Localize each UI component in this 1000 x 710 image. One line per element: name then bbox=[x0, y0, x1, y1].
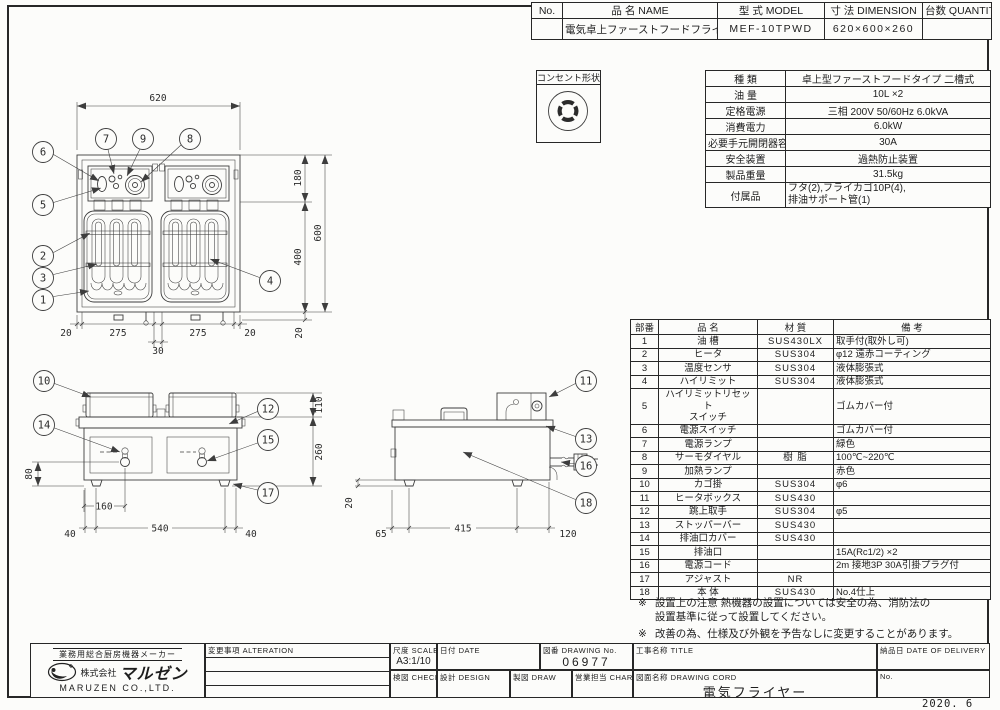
svg-text:18: 18 bbox=[580, 498, 593, 510]
parts-row: 6 電源スイッチ ゴムカバー付 bbox=[631, 424, 991, 438]
part-name: ハイリミット bbox=[659, 375, 758, 389]
svg-text:7: 7 bbox=[103, 134, 109, 146]
part-material: 樹 脂 bbox=[758, 451, 834, 465]
dim-label: 40 bbox=[64, 529, 76, 540]
company-name: マルゼン bbox=[120, 660, 188, 684]
spec-value: 過熱防止装置 bbox=[786, 151, 991, 167]
col-material: 材 質 bbox=[758, 320, 834, 335]
part-name: 油 槽 bbox=[659, 335, 758, 349]
part-no: 1 bbox=[631, 335, 659, 349]
part-material bbox=[758, 465, 834, 479]
part-name: ハイリミットリセット スイッチ bbox=[659, 389, 758, 425]
part-material: SUS430 bbox=[758, 492, 834, 506]
part-no: 7 bbox=[631, 438, 659, 452]
part-material: SUS430 bbox=[758, 532, 834, 546]
svg-text:15: 15 bbox=[262, 435, 275, 447]
col-part-no: 部番 bbox=[631, 320, 659, 335]
part-no: 9 bbox=[631, 465, 659, 479]
spec-value: 30A bbox=[786, 135, 991, 151]
part-note: ゴムカバー付 bbox=[834, 424, 991, 438]
dim-label: 260 bbox=[314, 443, 325, 460]
issue-date: 2020. 6 bbox=[922, 698, 973, 710]
dim-label: 600 bbox=[313, 224, 324, 241]
part-no: 13 bbox=[631, 519, 659, 533]
dim-label: 30 bbox=[152, 346, 164, 357]
parts-row: 13 ストッパーバー SUS430 bbox=[631, 519, 991, 533]
part-name: ヒータ bbox=[659, 348, 758, 362]
spec-table: 種 類 卓上型ファーストフードタイプ 二槽式 油 量 10L ×2 定格電源 三… bbox=[705, 70, 991, 208]
dim-label: 20 bbox=[244, 328, 256, 339]
callout-15: 15 bbox=[207, 430, 279, 462]
model-dimension: 620×600×260 bbox=[825, 19, 923, 40]
dim-label: 180 bbox=[293, 169, 304, 186]
part-name: 電源ランプ bbox=[659, 438, 758, 452]
part-no: 12 bbox=[631, 505, 659, 519]
model-no bbox=[532, 19, 563, 40]
part-note: φ12 遠赤コーティング bbox=[834, 348, 991, 362]
design-label: 設計 DESIGN bbox=[440, 672, 490, 683]
part-material: SUS430LX bbox=[758, 335, 834, 349]
dim-label: 110 bbox=[314, 396, 325, 413]
parts-row: 14 排油口カバー SUS430 bbox=[631, 532, 991, 546]
part-no: 5 bbox=[631, 389, 659, 425]
dim-label: 40 bbox=[245, 529, 257, 540]
callout-14: 14 bbox=[34, 415, 121, 453]
spec-label: 種 類 bbox=[706, 71, 786, 87]
parts-row: 8 サーモダイヤル 樹 脂 100℃~220℃ bbox=[631, 451, 991, 465]
spec-label: 製品重量 bbox=[706, 167, 786, 183]
parts-row: 2 ヒータ SUS304 φ12 遠赤コーティング bbox=[631, 348, 991, 362]
part-note bbox=[834, 573, 991, 587]
part-note: 液体膨張式 bbox=[834, 375, 991, 389]
part-name: 電源コード bbox=[659, 559, 758, 573]
dim-label: 65 bbox=[375, 529, 386, 540]
parts-row: 12 跳上取手 SUS304 φ5 bbox=[631, 505, 991, 519]
parts-row: 16 電源コード 2m 接地3P 30A引掛プラグ付 bbox=[631, 559, 991, 573]
col-dimension: 寸 法 DIMENSION bbox=[825, 3, 923, 19]
check-label: 検図 CHECK bbox=[393, 672, 440, 683]
svg-text:9: 9 bbox=[140, 134, 146, 146]
parts-row: 11 ヒータボックス SUS430 bbox=[631, 492, 991, 506]
callout-6: 6 bbox=[33, 142, 100, 182]
col-note: 備 考 bbox=[834, 320, 991, 335]
no-label: No. bbox=[880, 672, 893, 681]
col-name: 品 名 NAME bbox=[563, 3, 718, 19]
svg-text:8: 8 bbox=[187, 134, 193, 146]
parts-row: 5 ハイリミットリセット スイッチ ゴムカバー付 bbox=[631, 389, 991, 425]
part-name: サーモダイヤル bbox=[659, 451, 758, 465]
part-name: 排油口カバー bbox=[659, 532, 758, 546]
svg-text:12: 12 bbox=[262, 404, 275, 416]
part-note bbox=[834, 492, 991, 506]
scale-value: A3:1/10 bbox=[391, 656, 436, 667]
date-cell: 日付 DATE bbox=[437, 643, 540, 670]
model-quantity bbox=[923, 19, 992, 40]
part-note: φ5 bbox=[834, 505, 991, 519]
part-note: 緑色 bbox=[834, 438, 991, 452]
parts-table: 部番 品 名 材 質 備 考 1 油 槽 SUS430LX 取手付(取外し可) … bbox=[630, 319, 991, 600]
svg-text:17: 17 bbox=[262, 488, 275, 500]
part-no: 14 bbox=[631, 532, 659, 546]
part-name: 加熱ランプ bbox=[659, 465, 758, 479]
part-material bbox=[758, 389, 834, 425]
model-name: 電気卓上ファーストフードフライヤー bbox=[563, 19, 718, 40]
part-name: 温度センサ bbox=[659, 362, 758, 376]
outlet-shape-box: コンセント形状 bbox=[536, 70, 601, 143]
part-note: 取手付(取外し可) bbox=[834, 335, 991, 349]
design-cell: 設計 DESIGN bbox=[437, 670, 510, 698]
svg-text:6: 6 bbox=[40, 147, 46, 159]
callout-11: 11 bbox=[549, 371, 597, 398]
part-no: 10 bbox=[631, 478, 659, 492]
front-view: 110 260 80 160 40 540 40 10 bbox=[24, 371, 325, 541]
drawing-name-cell: 図面名称 DRAWING CORD 電気フライヤー bbox=[633, 670, 877, 698]
part-name: ヒータボックス bbox=[659, 492, 758, 506]
part-material: SUS304 bbox=[758, 505, 834, 519]
spec-label: 必要手元開閉器容量 bbox=[706, 135, 786, 151]
part-note: 液体膨張式 bbox=[834, 362, 991, 376]
svg-text:2: 2 bbox=[40, 251, 46, 263]
spec-value: 10L ×2 bbox=[786, 87, 991, 103]
svg-text:16: 16 bbox=[580, 461, 593, 473]
spec-row: 定格電源 三相 200V 50/60Hz 6.0kVA bbox=[706, 103, 991, 119]
note-text: 改善の為、仕様及び外観を予告なしに変更することがあります。 bbox=[655, 627, 958, 641]
note-mark: ※ bbox=[638, 596, 647, 624]
callout-3: 3 bbox=[33, 264, 98, 289]
draw-cell: 製図 DRAW bbox=[510, 670, 572, 698]
drawing-name-value: 電気フライヤー bbox=[634, 682, 876, 701]
locking-plug-icon bbox=[537, 85, 600, 137]
part-no: 6 bbox=[631, 424, 659, 438]
svg-text:11: 11 bbox=[580, 376, 593, 388]
part-no: 4 bbox=[631, 375, 659, 389]
callout-1: 1 bbox=[33, 290, 90, 311]
no-cell: No. bbox=[877, 670, 990, 698]
side-view: 20 65 415 120 11 13 16 18 bbox=[344, 371, 598, 541]
part-name: カゴ掛 bbox=[659, 478, 758, 492]
date-label: 日付 DATE bbox=[440, 645, 480, 656]
delivery-cell: 納品日 DATE OF DELIVERY bbox=[877, 643, 990, 670]
part-material bbox=[758, 559, 834, 573]
spec-label: 定格電源 bbox=[706, 103, 786, 119]
part-note bbox=[834, 532, 991, 546]
spec-row: 油 量 10L ×2 bbox=[706, 87, 991, 103]
note-line: ※ 設置上の注意 熱機器の設置については安全の為、消防法の 設置基準に従って設置… bbox=[638, 596, 990, 624]
part-name: ストッパーバー bbox=[659, 519, 758, 533]
drawing-no-value: 06977 bbox=[541, 655, 632, 669]
delivery-label: 納品日 DATE OF DELIVERY bbox=[880, 645, 986, 656]
drawing-no-cell: 図番 DRAWING No. 06977 bbox=[540, 643, 633, 670]
title-label: 工事名称 TITLE bbox=[636, 645, 694, 656]
dim-label: 80 bbox=[24, 468, 35, 480]
dim-label: 120 bbox=[559, 529, 576, 540]
part-name: 排油口 bbox=[659, 546, 758, 560]
part-no: 16 bbox=[631, 559, 659, 573]
callout-17: 17 bbox=[233, 483, 279, 504]
plan-view: 620 180 400 600 20 20 275 bbox=[33, 93, 333, 357]
part-no: 3 bbox=[631, 362, 659, 376]
spec-value: フタ(2),フライカゴ10P(4), 排油サポート管(1) bbox=[786, 183, 991, 208]
dim-label: 275 bbox=[189, 328, 206, 339]
spec-label: 消費電力 bbox=[706, 119, 786, 135]
spec-value: 三相 200V 50/60Hz 6.0kVA bbox=[786, 103, 991, 119]
parts-row: 1 油 槽 SUS430LX 取手付(取外し可) bbox=[631, 335, 991, 349]
note-text: 設置上の注意 熱機器の設置については安全の為、消防法の 設置基準に従って設置して… bbox=[655, 596, 930, 624]
part-material bbox=[758, 546, 834, 560]
part-no: 17 bbox=[631, 573, 659, 587]
spec-row: 種 類 卓上型ファーストフードタイプ 二槽式 bbox=[706, 71, 991, 87]
callout-13: 13 bbox=[546, 426, 597, 450]
parts-row: 3 温度センサ SUS304 液体膨張式 bbox=[631, 362, 991, 376]
draw-label: 製図 DRAW bbox=[513, 672, 556, 683]
callout-4: 4 bbox=[210, 259, 281, 292]
outlet-label: コンセント形状 bbox=[537, 71, 600, 85]
svg-text:10: 10 bbox=[38, 376, 51, 388]
callout-2: 2 bbox=[33, 233, 91, 267]
dim-label: 400 bbox=[293, 248, 304, 265]
col-quantity: 台数 QUANTITY bbox=[923, 3, 992, 19]
model-code: MEF-10TPWD bbox=[718, 19, 825, 40]
svg-text:4: 4 bbox=[267, 276, 273, 288]
spec-value: 31.5kg bbox=[786, 167, 991, 183]
spec-value: 6.0kW bbox=[786, 119, 991, 135]
part-note: φ6 bbox=[834, 478, 991, 492]
col-part-name: 品 名 bbox=[659, 320, 758, 335]
spec-label: 付属品 bbox=[706, 183, 786, 208]
svg-text:1: 1 bbox=[40, 295, 46, 307]
part-no: 8 bbox=[631, 451, 659, 465]
scale-label: 尺度 SCALE bbox=[393, 645, 439, 656]
part-name: アジャスト bbox=[659, 573, 758, 587]
col-no: No. bbox=[532, 3, 563, 19]
part-material: SUS304 bbox=[758, 478, 834, 492]
parts-row: 7 電源ランプ 緑色 bbox=[631, 438, 991, 452]
callout-10: 10 bbox=[34, 371, 92, 398]
svg-text:14: 14 bbox=[38, 420, 51, 432]
maruzen-logo-icon bbox=[47, 662, 77, 682]
svg-text:3: 3 bbox=[40, 273, 46, 285]
dim-label: 275 bbox=[109, 328, 126, 339]
note-line: ※ 改善の為、仕様及び外観を予告なしに変更することがあります。 bbox=[638, 627, 990, 641]
part-material: SUS304 bbox=[758, 362, 834, 376]
part-no: 15 bbox=[631, 546, 659, 560]
alteration-cell: 変更事項 ALTERATION bbox=[205, 643, 390, 698]
col-model: 型 式 MODEL bbox=[718, 3, 825, 19]
dim-label: 160 bbox=[95, 502, 112, 513]
alteration-label: 変更事項 ALTERATION bbox=[208, 645, 294, 656]
spec-row: 付属品 フタ(2),フライカゴ10P(4), 排油サポート管(1) bbox=[706, 183, 991, 208]
note-mark: ※ bbox=[638, 627, 647, 641]
svg-text:13: 13 bbox=[580, 434, 593, 446]
part-material bbox=[758, 424, 834, 438]
model-table: No. 品 名 NAME 型 式 MODEL 寸 法 DIMENSION 台数 … bbox=[531, 2, 992, 40]
spec-label: 安全装置 bbox=[706, 151, 786, 167]
part-note: 赤色 bbox=[834, 465, 991, 479]
spec-row: 製品重量 31.5kg bbox=[706, 167, 991, 183]
parts-row: 17 アジャスト NR bbox=[631, 573, 991, 587]
parts-row: 4 ハイリミット SUS304 液体膨張式 bbox=[631, 375, 991, 389]
notes: ※ 設置上の注意 熱機器の設置については安全の為、消防法の 設置基準に従って設置… bbox=[638, 596, 990, 644]
title-block: 業務用総合厨房機器メーカー 株式会社 マルゼン MARUZEN CO.,LTD.… bbox=[30, 643, 990, 698]
title-cell: 工事名称 TITLE bbox=[633, 643, 877, 670]
dim-label: 20 bbox=[60, 328, 72, 339]
charge-cell: 営業担当 CHARGE bbox=[572, 670, 633, 698]
dim-label: 20 bbox=[294, 327, 305, 339]
spec-row: 必要手元開閉器容量 30A bbox=[706, 135, 991, 151]
dim-label: 415 bbox=[454, 524, 471, 535]
part-name: 跳上取手 bbox=[659, 505, 758, 519]
part-note: 15A(Rc1/2) ×2 bbox=[834, 546, 991, 560]
parts-row: 10 カゴ掛 SUS304 φ6 bbox=[631, 478, 991, 492]
dim-label: 20 bbox=[344, 497, 355, 509]
parts-row: 9 加熱ランプ 赤色 bbox=[631, 465, 991, 479]
spec-row: 消費電力 6.0kW bbox=[706, 119, 991, 135]
part-no: 2 bbox=[631, 348, 659, 362]
part-material: SUS430 bbox=[758, 519, 834, 533]
spec-row: 安全装置 過熱防止装置 bbox=[706, 151, 991, 167]
part-material: SUS304 bbox=[758, 348, 834, 362]
part-note: 100℃~220℃ bbox=[834, 451, 991, 465]
company-name-en: MARUZEN CO.,LTD. bbox=[59, 683, 175, 693]
drawing-sheet: 620 180 400 600 20 20 275 bbox=[0, 0, 1000, 710]
part-note bbox=[834, 519, 991, 533]
check-cell: 検図 CHECK bbox=[390, 670, 437, 698]
svg-text:5: 5 bbox=[40, 200, 46, 212]
spec-label: 油 量 bbox=[706, 87, 786, 103]
company-cell: 業務用総合厨房機器メーカー 株式会社 マルゼン MARUZEN CO.,LTD. bbox=[30, 643, 205, 698]
callout-7: 7 bbox=[96, 129, 117, 175]
part-material bbox=[758, 438, 834, 452]
part-no: 11 bbox=[631, 492, 659, 506]
part-note: 2m 接地3P 30A引掛プラグ付 bbox=[834, 559, 991, 573]
model-row: 電気卓上ファーストフードフライヤー MEF-10TPWD 620×600×260 bbox=[532, 19, 992, 40]
part-material: NR bbox=[758, 573, 834, 587]
dim-label: 540 bbox=[151, 524, 168, 535]
scale-cell: 尺度 SCALE A3:1/10 bbox=[390, 643, 437, 670]
parts-row: 15 排油口 15A(Rc1/2) ×2 bbox=[631, 546, 991, 560]
spec-value: 卓上型ファーストフードタイプ 二槽式 bbox=[786, 71, 991, 87]
part-note: ゴムカバー付 bbox=[834, 389, 991, 425]
part-name: 電源スイッチ bbox=[659, 424, 758, 438]
dim-label: 620 bbox=[149, 93, 166, 104]
part-material: SUS304 bbox=[758, 375, 834, 389]
company-prefix: 株式会社 bbox=[80, 666, 116, 679]
